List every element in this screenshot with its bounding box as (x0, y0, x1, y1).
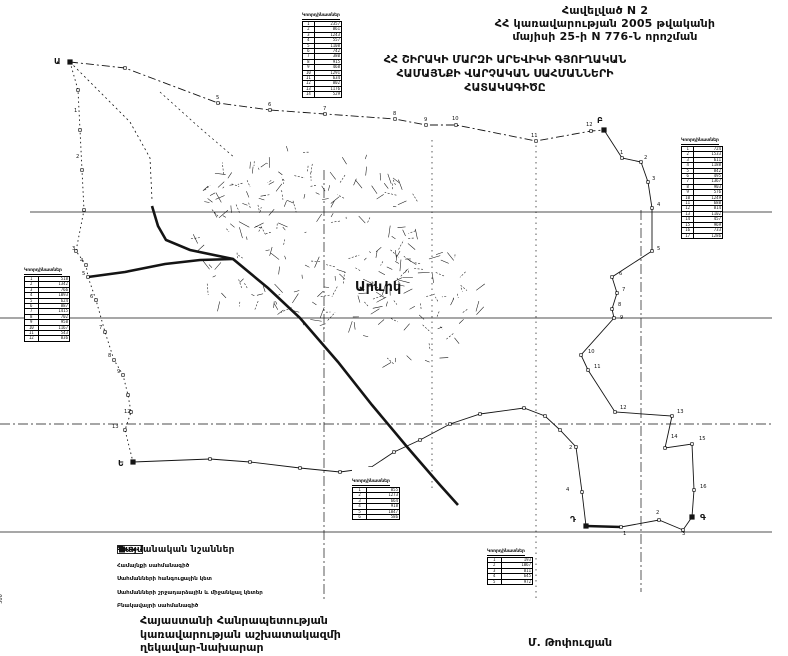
settlement-parcel-texture (461, 288, 463, 292)
boundary-turn-point-marker (127, 394, 130, 397)
settlement-parcel-texture (244, 283, 247, 288)
settlement-parcel-texture (317, 291, 323, 297)
legend-item: Սահմանների շրջադարձային և միջանկյալ կետե… (117, 588, 337, 597)
plan-title-line2: ՀԱՄԱՅՆՔԻ ՎԱՐՉԱԿԱՆ ՍԱՀՄԱՆՆԵՐԻ (360, 67, 650, 81)
boundary-turn-point-marker (671, 415, 674, 418)
settlement-parcel-texture (274, 301, 275, 308)
settlement-parcel-texture (207, 284, 208, 295)
settlement-parcel-texture (218, 182, 224, 188)
table-row: 6586 (353, 515, 400, 520)
table-row: 5972 (488, 579, 533, 584)
settlement-parcel-texture (364, 258, 366, 260)
signatory-name: Մ. Թոփուզյան (528, 636, 612, 649)
settlement-parcel-texture (282, 195, 283, 200)
decree-line2: մայիսի 25-ի N 776-Ն որոշման (430, 30, 780, 43)
settlement-parcel-texture (400, 260, 401, 272)
settlement-parcel-texture (260, 207, 261, 212)
settlement-parcel-texture (246, 191, 249, 197)
settlement-parcel-texture (436, 252, 443, 254)
boundary-turn-point-marker (535, 140, 538, 143)
settlement-parcel-texture (259, 198, 265, 200)
boundary-turn-point-marker (339, 471, 342, 474)
boundary-turn-point-marker (79, 129, 82, 132)
plan-title: ՀՀ ՇԻՐԱԿԻ ՄԱՐԶԻ ԱՐԵՎԻԿԻ ԳՅՈՒՂԱԿԱՆ ՀԱՄԱՅՆ… (360, 53, 650, 95)
legend-item: Բնակավայրի սահմանագիծ (117, 602, 337, 611)
settlement-parcel-texture (242, 203, 247, 205)
boundary-turn-point-marker (83, 209, 86, 212)
settlement-parcel-texture (338, 195, 344, 199)
settlement-parcel-texture (358, 296, 360, 303)
settlement-parcel-texture (261, 163, 266, 167)
settlement-parcel-texture (393, 206, 396, 207)
settlement-parcel-texture (435, 272, 444, 276)
settlement-parcel-texture (247, 180, 250, 187)
settlement-parcel-texture (408, 243, 415, 249)
boundary-turn-point-marker (425, 124, 428, 127)
settlement-name-label: Արևիկ (355, 280, 401, 295)
boundary-junction-marker (130, 459, 135, 464)
main-road-line (152, 206, 458, 505)
settlement-parcel-texture (283, 227, 286, 230)
table-cell: 586 (367, 515, 400, 520)
boundary-thick-segment (586, 526, 621, 527)
settlement-parcel-texture (293, 201, 296, 213)
settlement-parcel-texture (391, 318, 398, 322)
boundary-point-number: 9 (620, 315, 623, 321)
settlement-parcel-texture (369, 252, 372, 254)
settlement-parcel-texture (454, 338, 459, 344)
boundary-point-number: 7 (99, 325, 102, 331)
settlement-parcel-texture (364, 302, 368, 306)
settlement-parcel-texture (255, 300, 259, 309)
boundary-point-number: 8 (618, 302, 621, 308)
settlement-parcel-texture (476, 307, 483, 315)
settlement-parcel-texture (285, 256, 286, 259)
boundary-turn-point-marker (559, 429, 562, 432)
settlement-parcel-texture (354, 179, 357, 186)
boundary-turn-point-marker (87, 276, 90, 279)
settlement-parcel-texture (476, 284, 485, 290)
boundary-turn-point-marker (691, 443, 694, 446)
boundary-point-number: 13 (677, 409, 684, 415)
settlement-parcel-texture (322, 186, 325, 191)
settlement-parcel-texture (337, 269, 346, 272)
settlement-parcel-texture (413, 194, 418, 202)
settlement-parcel-texture (269, 182, 274, 185)
settlement-parcel-texture (294, 290, 299, 292)
boundary-point-number: 14 (671, 434, 678, 440)
settlement-parcel-texture (278, 310, 284, 315)
settlement-parcel-texture (382, 362, 391, 367)
footer-line2: կառավարության աշխատակազմի (140, 628, 341, 642)
settlement-parcel-texture (385, 192, 397, 195)
coordinate-table-right: Կոորդինատներ1724215333611411885842649571… (681, 126, 723, 239)
boundary-turn-point-marker (455, 124, 458, 127)
boundary-point-number: 10 (452, 116, 459, 122)
table-cell: 836 (38, 336, 70, 341)
settlement-parcel-texture (324, 287, 329, 288)
boundary-point-number: 16 (700, 484, 707, 490)
settlement-parcel-texture (398, 227, 406, 228)
settlement-parcel-texture (266, 250, 270, 251)
boundary-point-number: 2 (656, 510, 659, 516)
boundary-junction-marker (689, 514, 694, 519)
settlement-parcel-texture (435, 297, 437, 301)
boundary-turn-point-marker (209, 458, 212, 461)
settlement-parcel-texture (354, 267, 360, 270)
settlement-parcel-texture (461, 285, 467, 290)
settlement-parcel-texture (476, 301, 479, 311)
boundary-turn-point-marker (614, 411, 617, 414)
settlement-parcel-texture (237, 254, 243, 258)
boundary-turn-point-marker (651, 207, 654, 210)
settlement-parcel-texture (284, 201, 286, 207)
junction-letter-label: Բ (597, 116, 603, 125)
boundary-turn-point-marker (394, 118, 397, 121)
boundary-turn-point-marker (124, 429, 127, 432)
settlement-parcel-texture (239, 227, 242, 238)
settlement-parcel-texture (378, 319, 384, 324)
boundary-point-number: 10 (588, 349, 595, 355)
settlement-parcel-texture (203, 261, 209, 269)
settlement-parcel-texture (387, 267, 392, 270)
boundary-turn-point-marker (249, 461, 252, 464)
boundary-point-number: 1 (74, 108, 77, 114)
boundary-point-number: 3 (72, 246, 75, 252)
settlement-parcel-texture (459, 319, 463, 323)
settlement-parcel-texture (322, 199, 329, 200)
settlement-parcel-texture (240, 279, 244, 283)
settlement-parcel-texture (389, 226, 391, 238)
boundary-point-number: 12 (586, 122, 593, 128)
settlement-parcel-texture (280, 189, 282, 192)
settlement-parcel-texture (236, 203, 240, 212)
settlement-parcel-texture (217, 301, 219, 311)
appendix-number: Հավելված N 2 (430, 4, 780, 17)
junction-letter-label: Դ (570, 515, 576, 524)
settlement-parcel-texture (316, 193, 320, 195)
boundary-point-number: 12 (620, 405, 627, 411)
settlement-parcel-texture (363, 336, 368, 337)
settlement-parcel-texture (252, 167, 253, 174)
boundary-junction-marker (67, 59, 72, 64)
settlement-parcel-texture (266, 163, 269, 165)
settlement-parcel-texture (331, 197, 340, 204)
settlement-parcel-texture (393, 180, 395, 185)
settlement-parcel-texture (258, 205, 260, 213)
legend-item-label: Սահմանների շրջադարձային և միջանկյալ կետե… (117, 590, 263, 596)
settlement-parcel-texture (228, 172, 232, 178)
coordinate-table-grid: 1235728613124345575110867427380891594681… (302, 21, 342, 98)
boundary-turn-point-marker (590, 130, 593, 133)
access-road-line (70, 62, 152, 200)
settlement-parcel-texture (405, 269, 408, 273)
settlement-parcel-texture (404, 289, 413, 293)
settlement-parcel-texture (418, 272, 430, 273)
settlement-parcel-texture (432, 273, 433, 282)
legend-items: Համայնքի սահմանագիծՍահմանների հանգուցայի… (117, 561, 337, 611)
settlement-parcel-texture (348, 255, 359, 258)
boundary-point-number: 6 (90, 294, 93, 300)
table-cell: 5 (488, 579, 502, 584)
table-cell: 6 (353, 515, 367, 520)
boundary-point-number: 11 (531, 133, 538, 139)
settlement-parcel-texture (372, 186, 377, 194)
boundary-turn-point-marker (587, 369, 590, 372)
boundary-point-number: 6 (268, 102, 271, 108)
settlement-parcel-texture (219, 210, 228, 218)
community-boundary-south (586, 517, 692, 530)
settlement-parcel-texture (250, 162, 251, 169)
settlement-parcel-texture (311, 164, 312, 174)
boundary-turn-point-marker (419, 439, 422, 442)
table-cell: 14 (303, 92, 315, 97)
decree-line1: ՀՀ կառավարության 2005 թվականի (430, 17, 780, 30)
settlement-parcel-texture (230, 224, 234, 228)
settlement-parcel-texture (380, 173, 381, 180)
settlement-parcel-texture (384, 183, 388, 188)
junction-letter-label: Ա (54, 57, 61, 66)
table-row: 12836 (25, 336, 70, 341)
settlement-parcel-texture (342, 157, 346, 164)
legend: Պայմանական նշաններ Համայնքի սահմանագիծՍա… (117, 545, 337, 615)
settlement-parcel-texture (379, 271, 385, 274)
settlement-parcel-texture (429, 343, 430, 349)
settlement-parcel-texture (366, 167, 367, 176)
settlement-parcel-texture (332, 287, 337, 297)
settlement-parcel-texture (279, 267, 280, 275)
table-row: 14529 (303, 92, 342, 97)
legend-item: Համայնքի սահմանագիծ (117, 561, 337, 570)
boundary-turn-point-marker (299, 467, 302, 470)
settlement-parcel-texture (311, 261, 320, 262)
settlement-parcel-texture (441, 260, 449, 263)
legend-item: Սահմանների հանգուցային կետ (117, 575, 337, 584)
coordinate-table-bottom-right: Կոորդինատներ119321067381146455972 (487, 537, 533, 585)
settlement-parcel-texture (457, 294, 458, 298)
coordinate-table-grid: 1518213423766410935624688771415870299581… (24, 276, 70, 342)
boundary-turn-point-marker (693, 489, 696, 492)
boundary-turn-point-marker (616, 292, 619, 295)
boundary-point-number: 13 (112, 424, 119, 430)
settlement-parcel-texture (409, 306, 414, 309)
settlement-parcel-texture (317, 214, 322, 222)
scale-label: 500 (0, 594, 4, 604)
settlement-parcel-texture (212, 210, 219, 217)
settlement-parcel-texture (308, 165, 309, 172)
settlement-parcel-texture (286, 146, 288, 151)
settlement-parcel-texture (270, 247, 272, 256)
legend-item-label: Սահմանների հանգուցային կետ (117, 576, 212, 582)
settlement-parcel-texture (214, 212, 217, 217)
coordinate-table-top: Կոորդինատներ1235728613124345575110867427… (302, 1, 342, 98)
coordinate-table-grid: 18552127336644918510476586 (352, 487, 400, 520)
boundary-junction-marker (601, 127, 606, 132)
settlement-parcel-texture (371, 309, 380, 314)
settlement-parcel-texture (249, 203, 251, 208)
boundary-point-number: 15 (699, 436, 706, 442)
settlement-parcel-texture (446, 333, 453, 339)
settlement-parcel-texture (399, 240, 404, 249)
settlement-parcel-texture (404, 324, 410, 331)
boundary-point-number: 7 (622, 287, 625, 293)
settlement-parcel-texture (213, 276, 216, 277)
boundary-turn-point-marker (124, 67, 127, 70)
settlement-parcel-texture (365, 155, 366, 159)
settlement-parcel-texture (373, 306, 383, 308)
boundary-point-number: 11 (594, 364, 601, 370)
boundary-point-number: 2 (569, 445, 572, 451)
coordinate-table-grid: 1724215333611411885842649571367890395761… (681, 146, 723, 239)
boundary-turn-point-marker (613, 317, 616, 320)
boundary-point-number: 3 (682, 531, 685, 537)
table-cell: 529 (314, 92, 341, 97)
settlement-parcel-texture (407, 356, 412, 361)
settlement-parcel-texture (340, 175, 345, 183)
boundary-turn-point-marker (113, 359, 116, 362)
settlement-parcel-texture (368, 217, 370, 222)
settlement-parcel-texture (437, 312, 440, 318)
settlement-parcel-texture (315, 257, 320, 268)
boundary-turn-point-marker (217, 102, 220, 105)
boundary-turn-point-marker (664, 447, 667, 450)
settlement-parcel-texture (204, 202, 209, 203)
boundary-turn-point-marker (620, 526, 623, 529)
settlement-parcel-texture (292, 294, 298, 303)
settlement-parcel-texture (274, 304, 278, 310)
settlement-parcel-texture (304, 194, 305, 199)
boundary-point-number: 7 (323, 106, 326, 112)
signature-block: Հայաստանի Հանրապետության կառավարության ա… (140, 614, 341, 655)
settlement-parcel-texture (203, 186, 208, 191)
settlement-parcel-texture (239, 279, 242, 288)
coordinate-table-title: Կոորդինատներ (681, 138, 719, 145)
boundary-point-number: 4 (657, 202, 661, 208)
boundary-turn-point-marker (85, 264, 88, 267)
boundary-point-number: 1 (623, 531, 626, 537)
settlement-parcel-texture (284, 238, 285, 245)
settlement-parcel-texture (303, 232, 306, 233)
boundary-turn-point-marker (544, 415, 547, 418)
settlement-parcel-texture (205, 185, 210, 190)
boundary-turn-point-marker (611, 308, 614, 311)
settlement-parcel-texture (419, 315, 424, 319)
coordinate-table-grid: 119321067381146455972 (487, 557, 533, 585)
settlement-parcel-texture (275, 284, 283, 293)
boundary-turn-point-marker (581, 491, 584, 494)
secondary-road-line (88, 259, 233, 277)
coordinate-table-title: Կոորդինատներ (352, 479, 390, 486)
boundary-turn-point-marker (647, 181, 650, 184)
cadastral-plan-page: ԱԲԳԴԵ56789101112123456789101112131415161… (0, 0, 788, 656)
boundary-turn-point-marker (449, 423, 452, 426)
settlement-parcel-texture (376, 251, 377, 258)
settlement-parcel-texture (403, 230, 406, 236)
boundary-turn-point-marker (81, 169, 84, 172)
coordinate-table-title: Կոորդինատներ (24, 268, 62, 275)
settlement-parcel-texture (386, 302, 387, 307)
settlement-parcel-texture (208, 198, 213, 202)
settlement-parcel-texture (312, 302, 316, 305)
boundary-turn-point-marker (658, 519, 661, 522)
boundary-turn-point-marker (651, 250, 654, 253)
boundary-point-number: 9 (117, 369, 120, 375)
access-road-line (160, 92, 235, 158)
settlement-parcel-texture (222, 187, 224, 189)
boundary-junction-marker (583, 523, 588, 528)
coordinate-table-bottom-center: Կոորդինատներ18552127336644918510476586 (352, 467, 400, 520)
settlement-parcel-texture (377, 297, 387, 302)
settlement-parcel-texture (393, 178, 399, 183)
settlement-parcel-texture (264, 195, 269, 196)
boundary-point-number: 5 (216, 95, 219, 101)
legend-title: Պայմանական նշաններ (117, 545, 337, 555)
settlement-parcel-texture (257, 294, 263, 296)
table-cell: 1286 (694, 233, 723, 238)
settlement-parcel-texture (408, 231, 415, 234)
settlement-parcel-texture (276, 301, 277, 304)
settlement-parcel-texture (420, 303, 421, 309)
settlement-parcel-texture (226, 229, 229, 232)
settlement-parcel-texture (321, 295, 330, 296)
settlement-parcel-texture (395, 261, 399, 263)
boundary-point-number: 5 (657, 246, 660, 252)
boundary-turn-point-marker (269, 109, 272, 112)
settlement-parcel-texture (388, 174, 391, 184)
settlement-parcel-texture (331, 213, 333, 217)
settlement-parcel-texture (330, 172, 336, 179)
table-cell: 17 (682, 233, 694, 238)
settlement-parcel-texture (260, 225, 265, 235)
settlement-parcel-texture (451, 299, 454, 306)
settlement-parcel-texture (266, 232, 271, 234)
appendix-header: Հավելված N 2 ՀՀ կառավարության 2005 թվակա… (430, 4, 780, 43)
settlement-parcel-texture (278, 172, 282, 175)
settlement-parcel-texture (425, 360, 430, 362)
settlement-parcel-texture (328, 185, 329, 190)
settlement-parcel-texture (278, 223, 287, 227)
coordinate-table-title: Կոորդինատներ (487, 549, 525, 556)
boundary-point-number: 3 (652, 176, 655, 182)
boundary-turn-point-marker (640, 161, 643, 164)
settlement-parcel-texture (271, 253, 279, 259)
settlement-parcel-texture (423, 325, 431, 332)
settlement-parcel-texture (326, 265, 335, 267)
boundary-turn-point-marker (104, 331, 107, 334)
settlement-parcel-texture (320, 307, 324, 318)
boundary-point-number: 8 (108, 353, 111, 359)
boundary-turn-point-marker (621, 157, 624, 160)
settlement-parcel-texture (414, 268, 423, 269)
boundary-turn-point-marker (479, 413, 482, 416)
settlement-parcel-texture (398, 201, 407, 205)
boundary-turn-point-marker (77, 89, 80, 92)
settlement-parcel-texture (460, 272, 466, 277)
boundary-point-number: 12 (124, 409, 131, 415)
boundary-turn-point-marker (324, 113, 327, 116)
settlement-parcel-texture (246, 237, 247, 240)
junction-letter-label: Գ (700, 513, 706, 522)
boundary-point-number: 6 (619, 271, 622, 277)
settlement-parcel-texture (394, 301, 397, 305)
settlement-parcel-texture (396, 251, 400, 257)
settlement-parcel-texture (310, 320, 321, 322)
settlement-parcel-texture (331, 221, 340, 222)
settlement-parcel-texture (276, 184, 282, 192)
table-cell: 12 (25, 336, 39, 341)
boundary-turn-point-marker (611, 276, 614, 279)
boundary-point-number: 2 (644, 155, 647, 161)
